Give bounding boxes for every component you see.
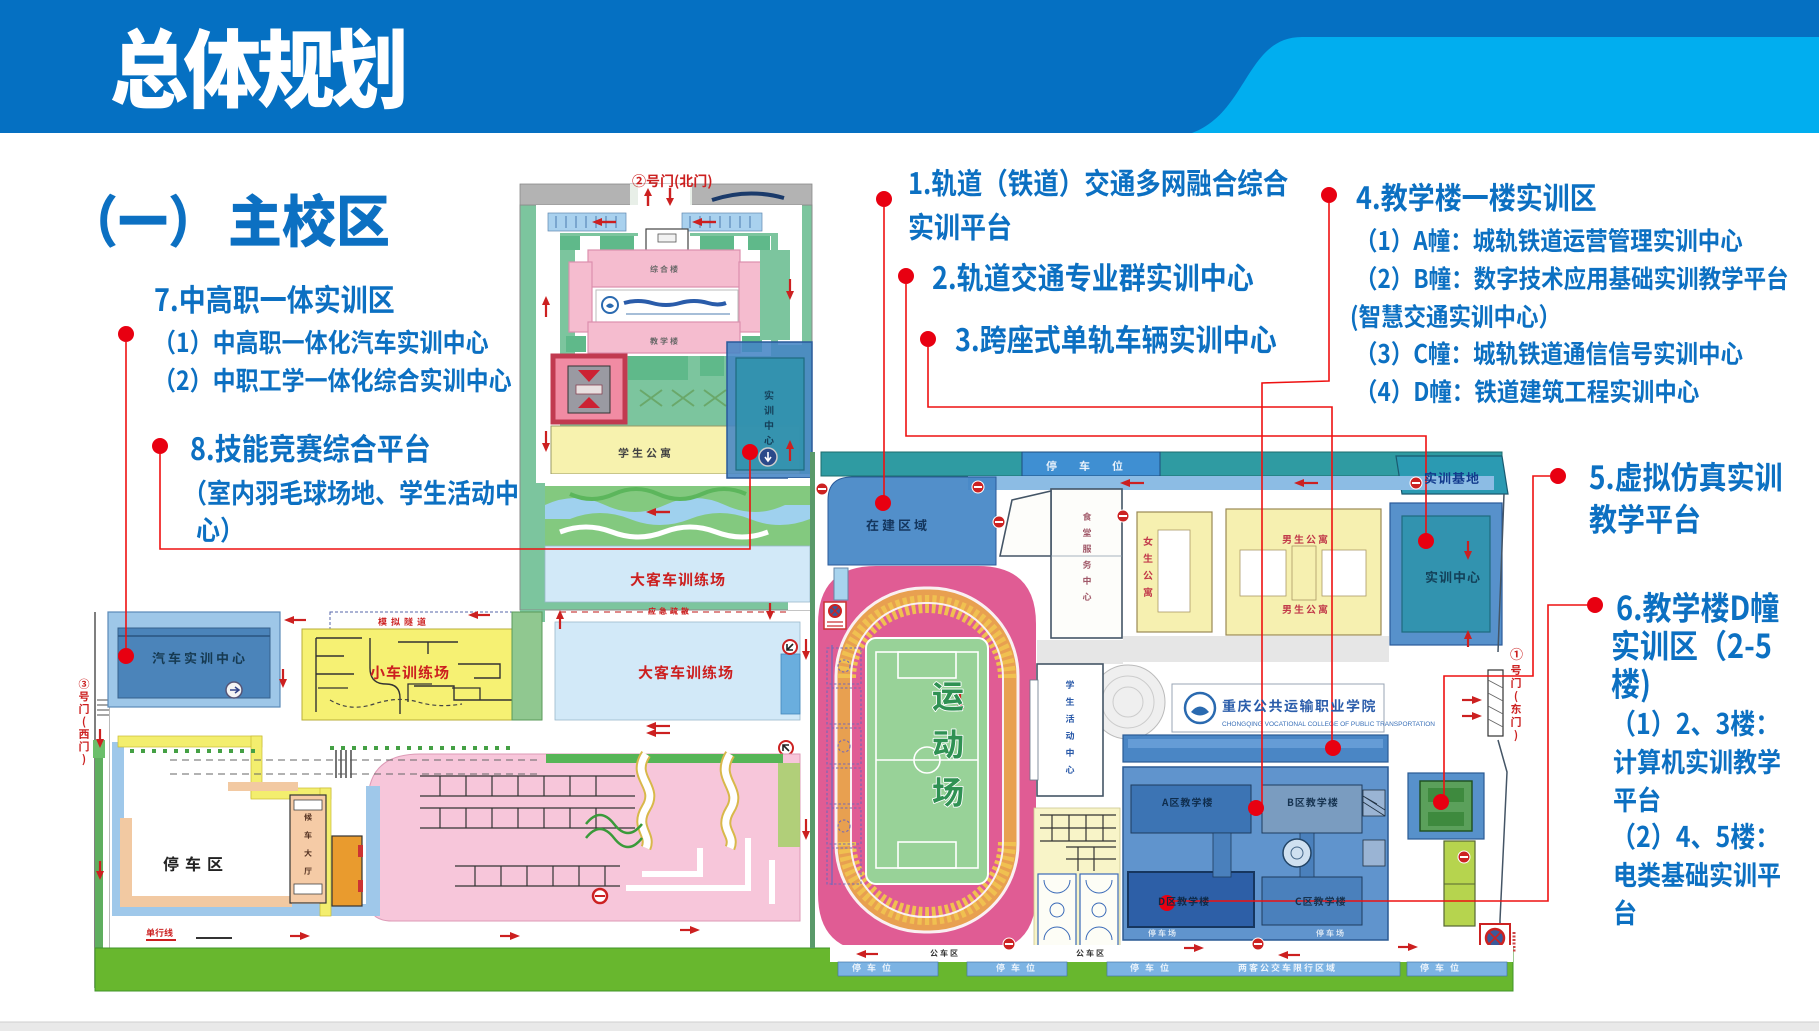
svg-text:CHONGQING VOCATIONAL COLLEGE O: CHONGQING VOCATIONAL COLLEGE OF PUBLIC T…	[1222, 721, 1435, 728]
